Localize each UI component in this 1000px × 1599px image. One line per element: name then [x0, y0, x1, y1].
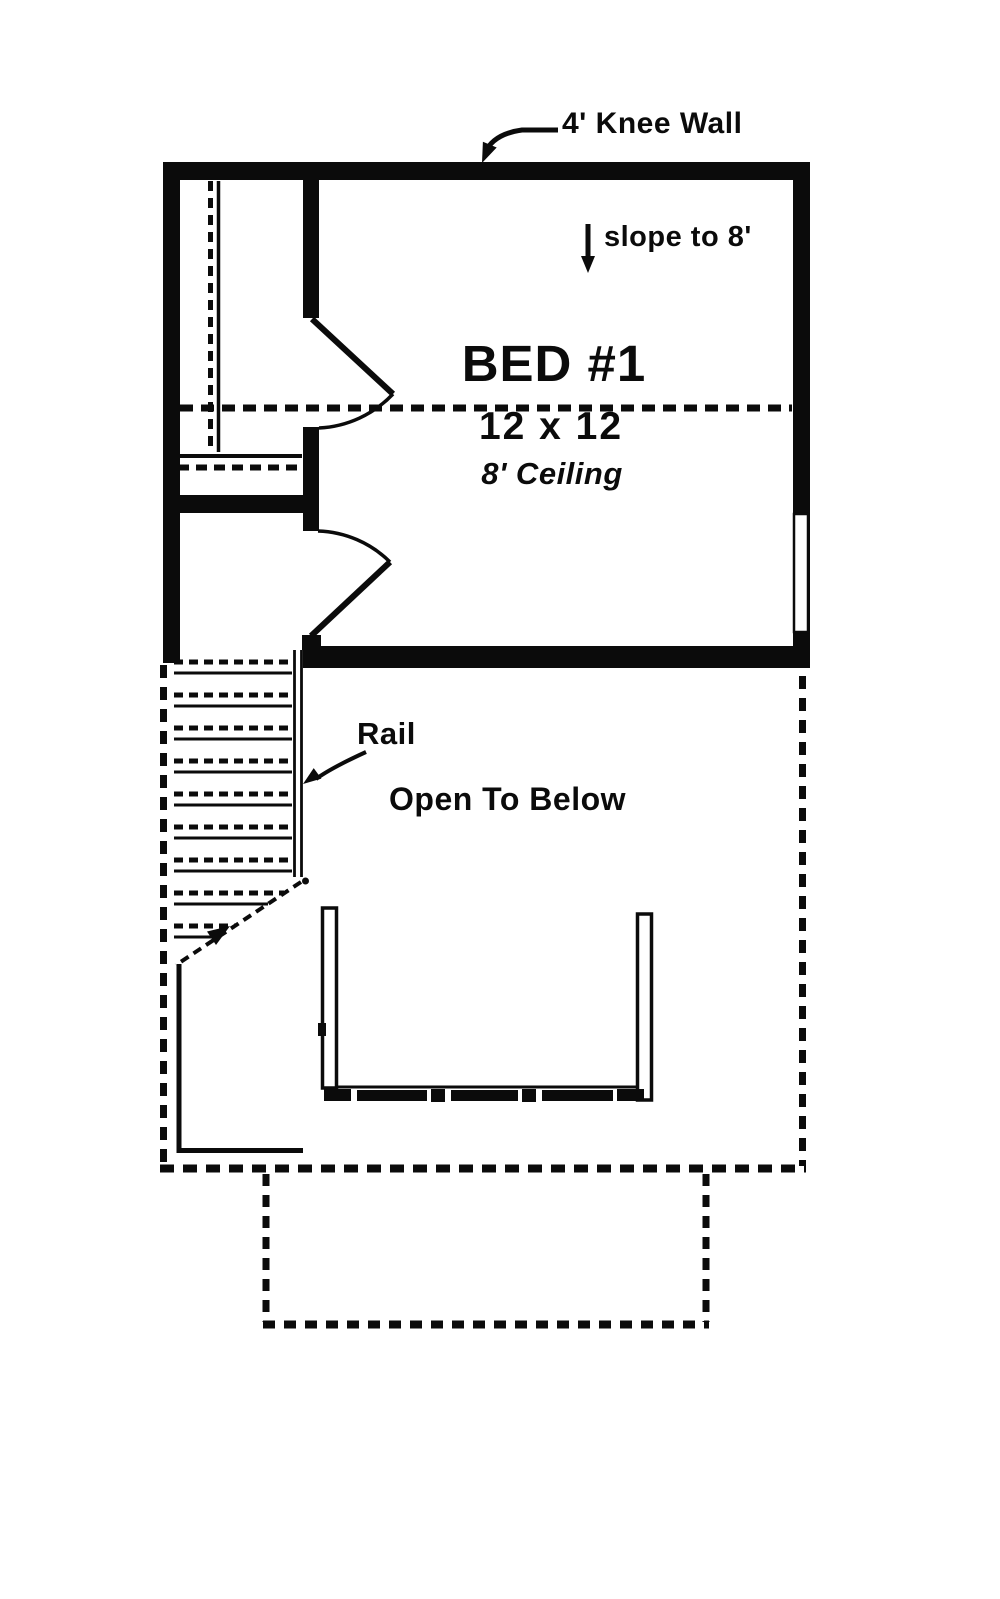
knee-wall-arrowhead-icon	[482, 142, 497, 163]
window	[794, 514, 808, 632]
room-name-label: BED #1	[462, 338, 647, 389]
interior-walls	[163, 180, 321, 650]
bedroom-door-swing-arc	[318, 531, 390, 562]
bedroom-door-jamb	[302, 635, 321, 650]
slope-arrowhead-icon	[581, 256, 595, 273]
knee-wall-label: 4' Knee Wall	[562, 109, 742, 139]
slope-direction-arrow	[581, 224, 595, 273]
hall-wall	[163, 495, 305, 513]
closet-partition-wall-upper	[303, 180, 319, 318]
stair-treads	[174, 662, 292, 937]
rail-label: Rail	[357, 718, 416, 749]
closet-door	[312, 319, 393, 428]
rail-arrowhead-icon	[303, 768, 321, 784]
room-ceiling-label: 8' Ceiling	[481, 458, 623, 489]
left-wall	[163, 162, 180, 663]
railing-post-1	[431, 1089, 445, 1102]
slope-label: slope to 8'	[604, 223, 752, 252]
railing-post-2	[522, 1089, 536, 1102]
railing-left-tick	[318, 1023, 326, 1036]
bedroom-door-leaf	[311, 562, 390, 636]
lower-left-wall-line	[179, 964, 303, 1151]
room-size-label: 12 x 12	[479, 407, 623, 446]
knee-wall-leader-arrow	[482, 130, 558, 163]
floor-plan-page: 4' Knee Wall slope to 8' BED #1 12 x 12 …	[0, 0, 1000, 1599]
railing-right-foot	[617, 1089, 644, 1101]
open-to-below-label: Open To Below	[389, 783, 626, 815]
rail-leader-arrow	[303, 752, 366, 784]
bedroom-bottom-wall	[303, 646, 810, 668]
top-wall	[163, 162, 810, 180]
stair-rail	[295, 650, 310, 885]
open-below-railing	[318, 908, 652, 1102]
bedroom-door	[311, 531, 390, 636]
closet-door-leaf	[312, 319, 393, 394]
railing-left-wall	[323, 908, 337, 1088]
closet-partition-wall-lower	[303, 427, 319, 531]
lower-level-outline-dashed	[263, 1174, 709, 1325]
rail-end-post	[302, 878, 309, 885]
railing-right-wall	[638, 914, 652, 1100]
railing-left-foot	[324, 1089, 351, 1101]
closet-detail	[178, 181, 302, 468]
